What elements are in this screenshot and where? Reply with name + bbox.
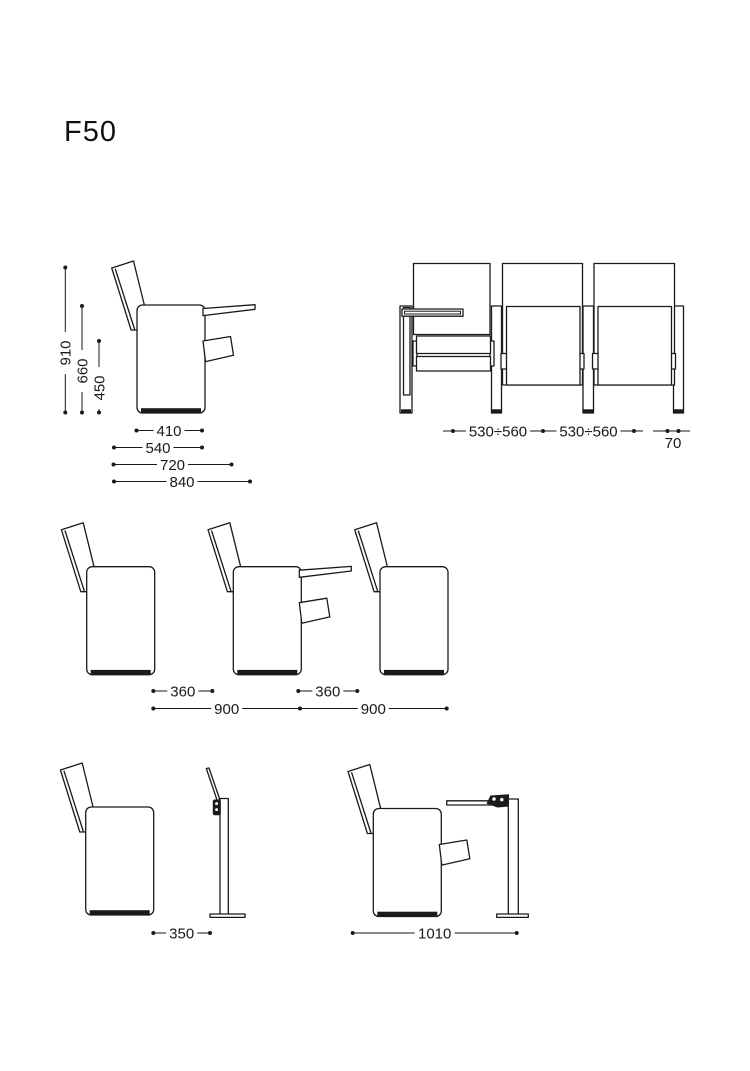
dim-width-540: 540 <box>112 440 204 457</box>
dim-label: 350 <box>169 925 194 942</box>
tablet-pedestal-folded <box>206 768 245 917</box>
side-view-open <box>112 261 255 413</box>
stand-base <box>497 914 529 917</box>
tablet-edge-folded <box>206 768 220 801</box>
dim-height-910: 910 <box>57 266 74 415</box>
dim-label: 540 <box>145 440 170 457</box>
dim-label: 410 <box>156 423 181 440</box>
model-title: F50 <box>64 116 117 148</box>
dim-width-410: 410 <box>135 423 205 440</box>
dim-label: 660 <box>74 358 91 383</box>
tablet-folded <box>299 598 330 623</box>
side-chair-closed <box>61 523 154 675</box>
dim-label: 360 <box>315 683 340 700</box>
tablet-open-view <box>348 765 528 918</box>
dim-label: 530÷560 <box>469 423 527 440</box>
seat-down <box>417 336 491 354</box>
dim-height-660: 660 <box>74 304 91 415</box>
dim-passage-1: 360 <box>151 683 214 700</box>
tablet-extended <box>203 305 255 316</box>
side-chair-closed <box>60 763 153 915</box>
backrest <box>414 264 491 335</box>
front-view-three-seats <box>400 264 684 414</box>
dim-row-distance-1: 900 <box>151 701 302 718</box>
side-chair-closed <box>355 523 448 675</box>
dim-label: 360 <box>170 683 195 700</box>
dim-label: 900 <box>214 701 239 718</box>
dim-leg-width: 70 <box>653 429 690 452</box>
dim-label: 70 <box>665 435 682 452</box>
tablet-support <box>404 308 411 396</box>
tablet-front <box>402 309 463 316</box>
dim-label: 530÷560 <box>559 423 617 440</box>
tablet-folded <box>203 337 234 362</box>
pedestal-base <box>210 914 245 917</box>
seat-folded-up <box>598 307 672 386</box>
dim-label: 840 <box>169 474 194 491</box>
dim-width-720: 720 <box>112 457 234 474</box>
spec-sheet: F50 910 660 450 410 540 <box>0 0 750 1066</box>
side-chair <box>348 765 441 917</box>
dim-stand-1010: 1010 <box>351 925 519 942</box>
row-spacing-view <box>61 523 448 675</box>
pedestal-post <box>220 799 228 917</box>
technical-drawing: F50 910 660 450 410 540 <box>0 0 750 1066</box>
dim-label: 900 <box>361 701 386 718</box>
dim-label: 450 <box>91 375 108 400</box>
dim-pedestal-350: 350 <box>151 925 212 942</box>
seat-folded-up <box>507 307 581 386</box>
dim-height-450: 450 <box>91 339 108 415</box>
dim-label: 1010 <box>418 925 451 942</box>
dim-width-840: 840 <box>112 474 252 491</box>
dim-seat-widths: 530÷560 530÷560 <box>443 423 643 440</box>
dim-passage-2: 360 <box>296 683 359 700</box>
tablet-folded <box>439 840 470 865</box>
tablet-folded-view <box>60 763 245 917</box>
seat-down <box>417 357 491 372</box>
stand-post <box>508 799 518 917</box>
side-chair-open <box>208 523 301 675</box>
dim-row-distance-2: 900 <box>300 701 449 718</box>
dim-label: 720 <box>160 457 185 474</box>
tablet-extended <box>299 566 351 577</box>
dim-label: 910 <box>58 340 75 365</box>
side-chair <box>112 261 205 413</box>
